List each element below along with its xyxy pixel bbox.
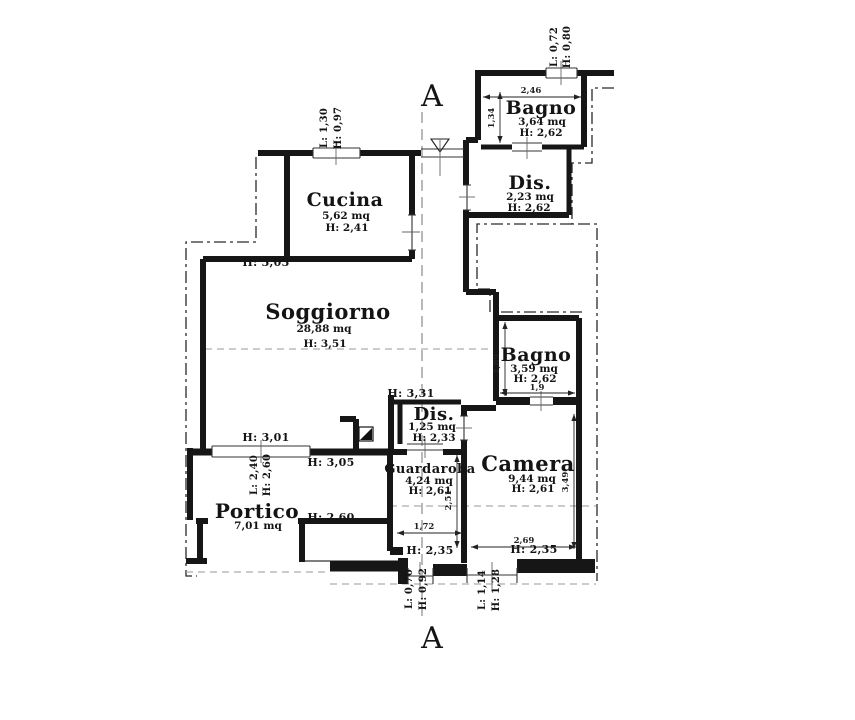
wall-height-portico-top: H: 3,05: [307, 456, 354, 469]
room-soggiorno-name: Soggiorno: [265, 299, 390, 324]
opening-bagno-top-window-l: L: 0,72: [549, 27, 560, 67]
dim-bagno-top-depth: 1,34: [487, 108, 497, 129]
room-dis-small-height: H: 2,33: [412, 432, 455, 444]
opening-south-door-small-h: H: 0,92: [418, 568, 429, 610]
shaft-marker: [359, 427, 373, 441]
room-cucina-name: Cucina: [307, 189, 384, 211]
wall-height-soggiorno-bottom: H: 3,01: [242, 431, 289, 444]
room-bagno-top-height: H: 2,62: [519, 127, 562, 139]
opening-portico-window-h: H: 2,60: [262, 454, 273, 496]
floor-plan-page: A A Cucina 5,62 mq H: 2,41 Soggiorno 28,…: [0, 0, 855, 720]
opening-south-door-large-h: H: 1,28: [491, 569, 502, 611]
floor-plan: A A Cucina 5,62 mq H: 2,41 Soggiorno 28,…: [0, 0, 855, 720]
room-cucina-area: 5,62 mq: [322, 210, 370, 222]
dim-camera-depth: 3,49: [561, 472, 571, 493]
opening-south-door-large-l: L: 1,14: [477, 570, 488, 610]
dim-guardaroba-width: 1,72: [414, 522, 435, 532]
opening-cucina-window-h: H: 0,97: [333, 107, 344, 149]
wall-height-guardaroba-bottom: H: 2,35: [406, 544, 453, 557]
dim-bagno-right-depth: 1,89: [492, 354, 502, 375]
room-soggiorno-height: H: 3,51: [303, 338, 346, 350]
opening-cucina-window-l: L: 1,30: [319, 108, 330, 148]
dim-bagno-top-width: 2,46: [521, 86, 542, 96]
opening-south-door-small-l: L: 0,70: [404, 569, 415, 609]
opening-bagno-top-window-h: H: 0,80: [562, 26, 573, 68]
room-dis-top-height: H: 2,62: [507, 202, 550, 214]
wall-height-dis-small-top: H: 3,31: [387, 387, 434, 400]
wall-height-soggiorno-top: H: 3,03: [242, 256, 289, 269]
room-cucina-height: H: 2,41: [325, 222, 368, 234]
dim-guardaroba-depth: 2,51: [444, 490, 454, 511]
section-label-top: A: [420, 79, 443, 114]
wall-height-portico-right: H: 2,60: [307, 511, 354, 524]
dim-camera-width: 2,69: [514, 536, 535, 546]
room-camera-height: H: 2,61: [511, 483, 554, 495]
opening-portico-window-l: L: 2,40: [249, 455, 260, 495]
section-label-bottom: A: [420, 621, 443, 656]
room-soggiorno-area: 28,88 mq: [297, 323, 353, 335]
dim-bagno-right-width: 1,9: [530, 383, 545, 393]
room-portico-area: 7,01 mq: [234, 520, 282, 532]
